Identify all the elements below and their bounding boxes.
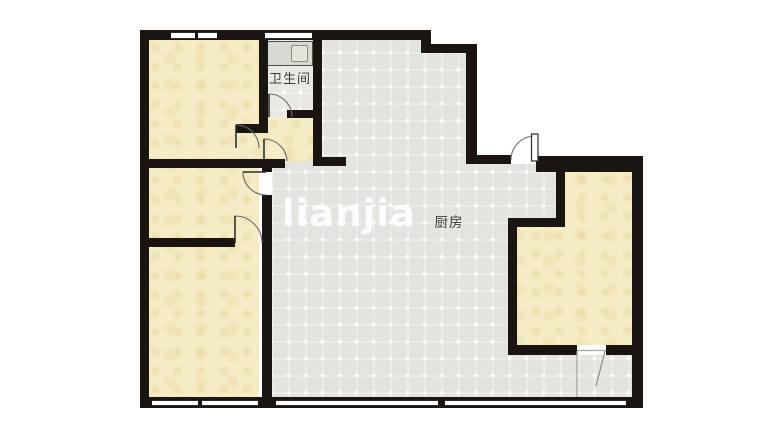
wall (313, 30, 322, 166)
window (276, 400, 626, 407)
wall (536, 156, 643, 172)
wall (140, 238, 235, 247)
window (152, 400, 258, 407)
sink-icon (291, 45, 308, 62)
wall (262, 195, 272, 400)
room-label-kitchen: 厨房 (424, 211, 474, 231)
wall (606, 345, 643, 355)
window-mullion (198, 400, 202, 407)
window (265, 32, 312, 40)
room-left-block (148, 40, 259, 397)
wall (632, 156, 643, 408)
wall (313, 157, 346, 166)
wall (466, 155, 511, 164)
floor-gap (285, 161, 313, 169)
wall (236, 124, 267, 133)
wall (508, 218, 517, 355)
wall (262, 159, 272, 172)
wall (140, 30, 149, 408)
window-mullion (195, 32, 198, 40)
bathroom-sink-counter (267, 41, 313, 66)
wall (556, 160, 565, 227)
window-mullion (438, 400, 445, 407)
wall (287, 110, 313, 118)
room-label-bathroom: 卫生间 (264, 68, 316, 87)
hallway-floor (267, 117, 313, 133)
wall (508, 345, 577, 355)
window (171, 32, 217, 40)
floor-plan-image: LIANJIA 卫生间 厨房 (0, 0, 780, 438)
wall (466, 44, 477, 164)
